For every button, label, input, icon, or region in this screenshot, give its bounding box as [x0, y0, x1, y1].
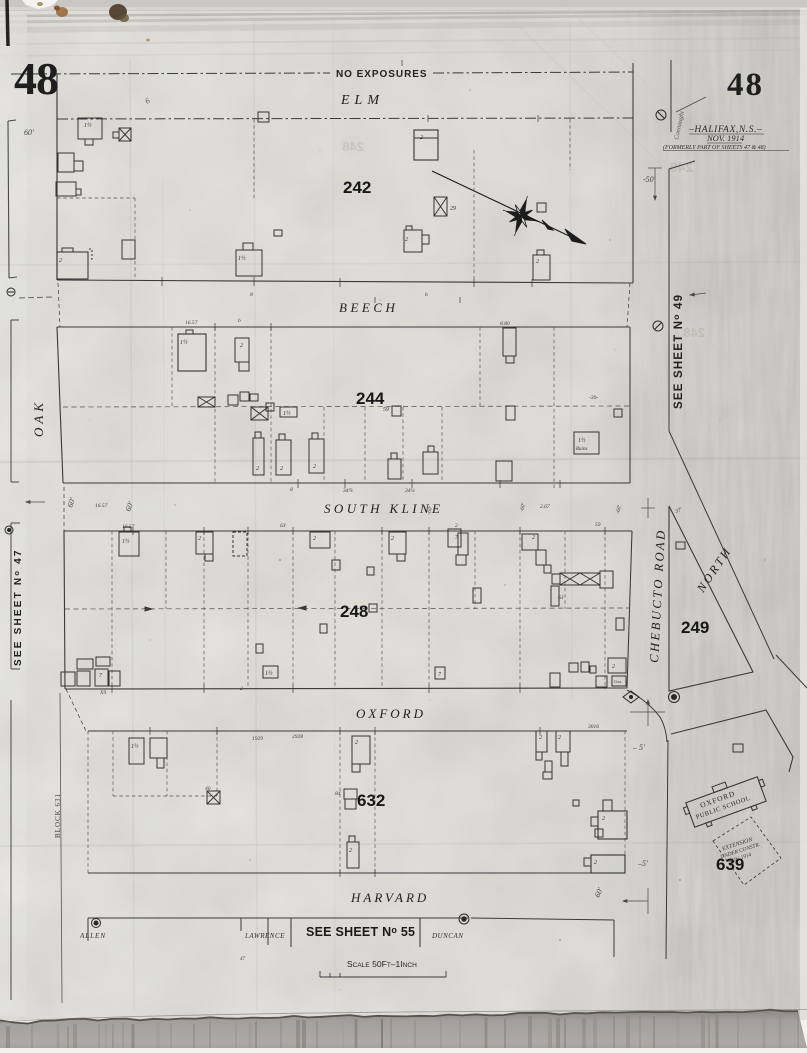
- svg-text:b: b: [425, 292, 428, 298]
- svg-text:2: 2: [349, 848, 352, 854]
- svg-text:40: 40: [205, 785, 211, 792]
- svg-text:249: 249: [669, 159, 693, 175]
- svg-text:DUNCAN: DUNCAN: [431, 932, 463, 940]
- svg-text:HARVARD: HARVARD: [350, 890, 429, 905]
- svg-text:(FORMERLY PART OF SHEETS 47 &: (FORMERLY PART OF SHEETS 47 & 48): [663, 144, 766, 151]
- svg-text:2: 2: [59, 258, 62, 264]
- svg-text:–5′: –5′: [637, 859, 648, 868]
- svg-text:2: 2: [420, 135, 423, 141]
- svg-text:SEE SHEET No 47: SEE SHEET No 47: [12, 548, 24, 666]
- svg-text:244: 244: [356, 389, 385, 408]
- svg-text:8: 8: [290, 487, 293, 493]
- svg-text:60′: 60′: [24, 128, 34, 137]
- svg-text:LAWRENCE: LAWRENCE: [244, 932, 285, 940]
- svg-text:ALLEN: ALLEN: [79, 932, 106, 940]
- svg-text:2: 2: [240, 686, 243, 692]
- svg-text:1½: 1½: [131, 743, 139, 750]
- svg-text:8.80: 8.80: [500, 321, 510, 327]
- svg-text:3016: 3016: [587, 724, 599, 730]
- svg-text:2: 2: [594, 860, 597, 866]
- svg-text:Ruins: Ruins: [575, 447, 587, 452]
- svg-text:b: b: [238, 318, 241, 324]
- svg-text:1½: 1½: [122, 538, 130, 545]
- svg-text:BLOCK 631: BLOCK 631: [54, 793, 62, 838]
- svg-text:NO EXPOSURES: NO EXPOSURES: [336, 69, 428, 80]
- svg-text:NOV. 1914: NOV. 1914: [706, 133, 745, 143]
- svg-text:2: 2: [455, 523, 458, 529]
- svg-text:2.67: 2.67: [540, 504, 550, 510]
- svg-text:1½: 1½: [84, 122, 92, 129]
- svg-text:-50′: -50′: [643, 175, 656, 184]
- svg-text:2: 2: [405, 237, 408, 243]
- svg-text:SEE SHEET No 49: SEE SHEET No 49: [671, 294, 685, 409]
- svg-text:1½: 1½: [578, 437, 586, 444]
- svg-text:16.57: 16.57: [185, 320, 198, 326]
- svg-text:8: 8: [250, 292, 253, 298]
- svg-text:2: 2: [256, 466, 259, 472]
- svg-text:632: 632: [357, 791, 385, 810]
- svg-text:2: 2: [280, 466, 283, 472]
- svg-text:84: 84: [335, 790, 341, 797]
- svg-text:SEE SHEET No 55: SEE SHEET No 55: [306, 925, 416, 939]
- svg-text:29: 29: [450, 206, 456, 212]
- svg-text:– 5′: – 5′: [632, 743, 645, 752]
- svg-text:47: 47: [240, 957, 246, 962]
- svg-text:59: 59: [595, 522, 601, 528]
- svg-text:Gas: Gas: [614, 679, 621, 684]
- svg-text:OXFORD: OXFORD: [356, 706, 426, 721]
- svg-text:63: 63: [280, 523, 286, 529]
- svg-text:1½: 1½: [265, 670, 273, 677]
- svg-text:2: 2: [391, 536, 394, 542]
- svg-text:2: 2: [240, 343, 243, 349]
- svg-text:48: 48: [727, 67, 764, 103]
- svg-text:BEECH: BEECH: [339, 300, 398, 315]
- svg-text:34¾: 34¾: [342, 487, 353, 494]
- svg-text:248: 248: [683, 325, 705, 340]
- svg-text:2: 2: [313, 536, 316, 542]
- svg-text:2: 2: [532, 535, 535, 541]
- svg-text:2: 2: [355, 740, 358, 746]
- svg-text:1½: 1½: [238, 255, 246, 262]
- svg-text:X9: X9: [99, 690, 106, 696]
- svg-text:249: 249: [681, 618, 709, 637]
- svg-text:242: 242: [343, 178, 371, 197]
- svg-text:248: 248: [340, 602, 368, 621]
- svg-text:48: 48: [14, 53, 58, 104]
- svg-text:-39-: -39-: [589, 395, 598, 401]
- svg-text:639: 639: [716, 855, 744, 874]
- svg-text:2: 2: [612, 664, 615, 670]
- svg-text:1½: 1½: [283, 410, 291, 417]
- svg-text:1929: 1929: [252, 736, 263, 742]
- svg-text:1½: 1½: [180, 339, 188, 346]
- svg-text:2: 2: [539, 735, 542, 741]
- svg-text:2: 2: [313, 464, 316, 470]
- svg-text:16.57: 16.57: [122, 524, 135, 530]
- svg-text:2: 2: [198, 536, 201, 542]
- svg-text:16.57: 16.57: [95, 503, 108, 509]
- svg-text:248: 248: [342, 139, 364, 154]
- svg-text:63: 63: [558, 595, 564, 601]
- svg-text:34¼: 34¼: [404, 487, 415, 494]
- svg-text:2928: 2928: [292, 734, 303, 740]
- svg-text:SOUTH KLINE: SOUTH KLINE: [324, 501, 443, 516]
- svg-text:2: 2: [536, 259, 539, 265]
- svg-text:2: 2: [602, 816, 605, 822]
- svg-text:2: 2: [558, 735, 561, 741]
- svg-text:OAK: OAK: [31, 399, 46, 437]
- svg-text:ELM: ELM: [340, 93, 384, 108]
